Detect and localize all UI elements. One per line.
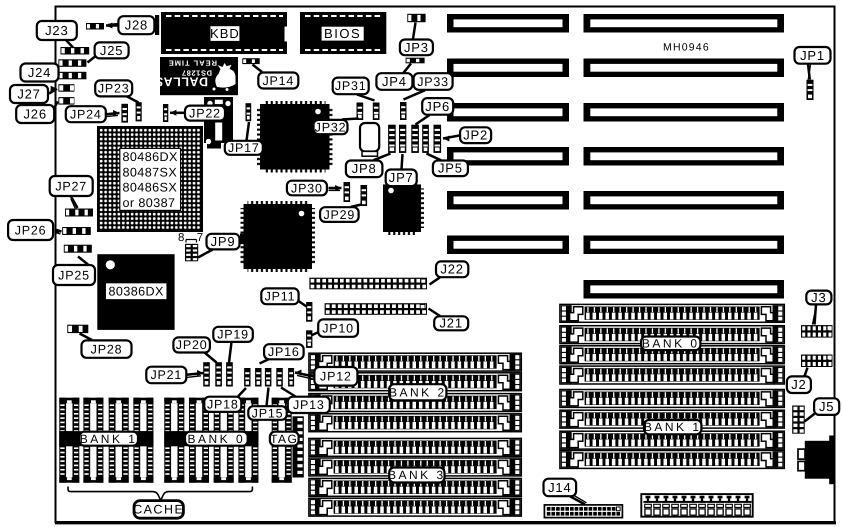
svg-text:JP22: JP22 [189, 106, 221, 120]
svg-text:7: 7 [197, 232, 203, 244]
svg-text:JP31: JP31 [335, 79, 367, 93]
svg-text:80487SX: 80487SX [123, 165, 178, 179]
svg-text:J25: J25 [100, 43, 123, 58]
svg-text:JP11: JP11 [265, 290, 296, 304]
svg-text:TAG: TAG [270, 432, 298, 446]
svg-text:JP4: JP4 [382, 74, 407, 89]
svg-text:J27: J27 [17, 86, 40, 101]
svg-text:JP13: JP13 [293, 398, 325, 412]
svg-text:BANK 0: BANK 0 [642, 336, 700, 350]
svg-text:JP27: JP27 [55, 179, 87, 193]
svg-text:or 80387: or 80387 [123, 196, 176, 210]
svg-text:BIOS: BIOS [324, 26, 361, 41]
svg-text:JP2: JP2 [463, 128, 488, 143]
svg-text:80486SX: 80486SX [123, 181, 178, 195]
svg-text:JP1: JP1 [800, 48, 825, 63]
svg-text:J24: J24 [28, 65, 51, 80]
svg-text:MH0946: MH0946 [663, 42, 710, 54]
svg-text:JP10: JP10 [322, 321, 354, 335]
svg-text:JP5: JP5 [438, 161, 463, 176]
svg-text:J26: J26 [24, 106, 47, 121]
svg-text:JP16: JP16 [268, 345, 300, 359]
svg-text:JP29: JP29 [323, 208, 355, 222]
svg-text:JP26: JP26 [15, 223, 47, 237]
svg-text:JP21: JP21 [150, 368, 182, 382]
svg-text:JP18: JP18 [207, 398, 239, 412]
svg-text:JP24: JP24 [70, 107, 102, 121]
svg-text:JP25: JP25 [58, 268, 90, 282]
svg-text:BANK 2: BANK 2 [389, 385, 447, 399]
svg-text:J28: J28 [125, 18, 148, 33]
svg-text:J21: J21 [440, 316, 463, 331]
svg-text:CACHE: CACHE [133, 503, 184, 517]
svg-text:JP33: JP33 [417, 75, 449, 89]
svg-text:JP14: JP14 [262, 74, 294, 88]
svg-text:JP7: JP7 [389, 170, 414, 185]
svg-text:JP9: JP9 [211, 234, 236, 249]
svg-text:JP30: JP30 [291, 181, 323, 195]
svg-text:JP28: JP28 [91, 342, 123, 356]
svg-text:J2: J2 [791, 377, 806, 392]
svg-text:BANK 0: BANK 0 [188, 432, 246, 446]
svg-text:J22: J22 [440, 262, 463, 277]
svg-text:8: 8 [178, 232, 184, 244]
svg-text:JP20: JP20 [176, 338, 208, 352]
svg-text:BANK 1: BANK 1 [644, 420, 702, 434]
svg-text:80486DX: 80486DX [123, 150, 179, 164]
svg-text:JP23: JP23 [98, 82, 130, 96]
svg-text:JP8: JP8 [352, 161, 377, 176]
svg-text:J5: J5 [819, 399, 834, 414]
svg-text:JP17: JP17 [228, 141, 260, 155]
svg-text:JP32: JP32 [315, 120, 347, 134]
svg-text:BANK 3: BANK 3 [388, 468, 446, 482]
svg-text:JP19: JP19 [217, 328, 249, 342]
svg-text:JP6: JP6 [425, 99, 450, 114]
svg-text:JP3: JP3 [404, 40, 429, 55]
svg-text:80386DX: 80386DX [109, 285, 165, 299]
svg-text:KBD: KBD [210, 26, 240, 41]
svg-text:REAL TIME: REAL TIME [168, 59, 217, 68]
svg-text:J3: J3 [811, 290, 826, 305]
svg-text:J23: J23 [45, 23, 68, 38]
svg-text:JP12: JP12 [320, 370, 352, 384]
svg-text:JP15: JP15 [252, 406, 284, 420]
svg-text:BANK 1: BANK 1 [80, 432, 138, 446]
svg-text:DS1287: DS1287 [181, 69, 212, 78]
svg-text:J14: J14 [548, 480, 571, 495]
